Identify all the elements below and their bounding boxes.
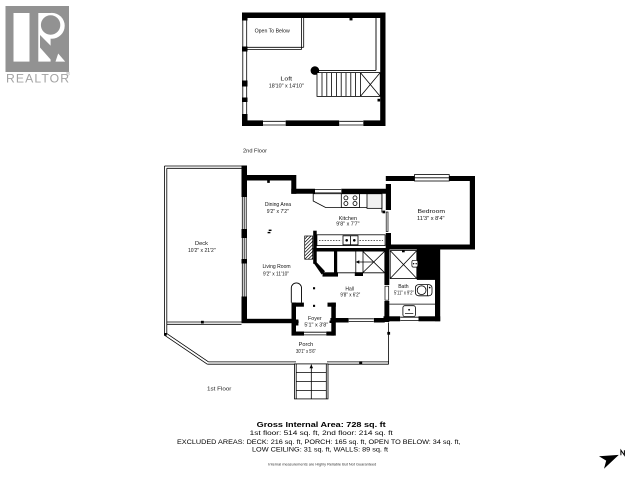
- svg-text:Foyer: Foyer: [308, 316, 322, 322]
- svg-text:Porch: Porch: [299, 342, 314, 348]
- svg-text:Loft: Loft: [280, 77, 292, 83]
- svg-text:18'10" x 14'10": 18'10" x 14'10": [269, 84, 304, 90]
- svg-text:5'11" x 9'2": 5'11" x 9'2": [394, 291, 414, 297]
- svg-text:Gross Internal Area: 728 sq. f: Gross Internal Area: 728 sq. ft: [257, 420, 387, 429]
- svg-text:Bath: Bath: [398, 284, 409, 290]
- svg-text:LOW CEILING: 31 sq. ft, WALLS:: LOW CEILING: 31 sq. ft, WALLS: 89 sq. ft: [252, 447, 388, 454]
- svg-text:Internal measurements are High: Internal measurements are Highly Reliabl…: [268, 463, 376, 467]
- svg-text:®: ®: [66, 71, 70, 78]
- svg-text:10'2" x 21'2": 10'2" x 21'2": [188, 248, 216, 254]
- svg-text:2nd Floor: 2nd Floor: [243, 149, 267, 155]
- svg-text:Living Room: Living Room: [263, 264, 291, 270]
- svg-text:9'8" x 6'2": 9'8" x 6'2": [340, 292, 360, 298]
- svg-text:Open To Below: Open To Below: [255, 29, 290, 35]
- svg-text:1st floor: 514 sq. ft, 2nd flo: 1st floor: 514 sq. ft, 2nd floor: 214 sq…: [250, 430, 393, 437]
- svg-text:9'2" x 7'2": 9'2" x 7'2": [267, 209, 289, 215]
- svg-text:Deck: Deck: [195, 241, 208, 247]
- svg-text:9'8" x 7'7": 9'8" x 7'7": [336, 222, 359, 228]
- svg-text:EXCLUDED AREAS: DECK: 216 sq.: EXCLUDED AREAS: DECK: 216 sq. ft, PORCH:…: [177, 439, 461, 446]
- svg-text:9'2" x 11'10": 9'2" x 11'10": [263, 271, 289, 277]
- svg-text:5'1" x 3'8": 5'1" x 3'8": [304, 322, 328, 328]
- svg-text:REALTOR: REALTOR: [6, 72, 70, 86]
- svg-text:1st Floor: 1st Floor: [207, 387, 232, 393]
- svg-text:Bedroom: Bedroom: [418, 209, 446, 215]
- svg-text:30'1" x 5'6": 30'1" x 5'6": [296, 349, 316, 355]
- svg-text:11'3" x 8'4": 11'3" x 8'4": [417, 216, 445, 222]
- svg-text:Dining Area: Dining Area: [265, 202, 291, 208]
